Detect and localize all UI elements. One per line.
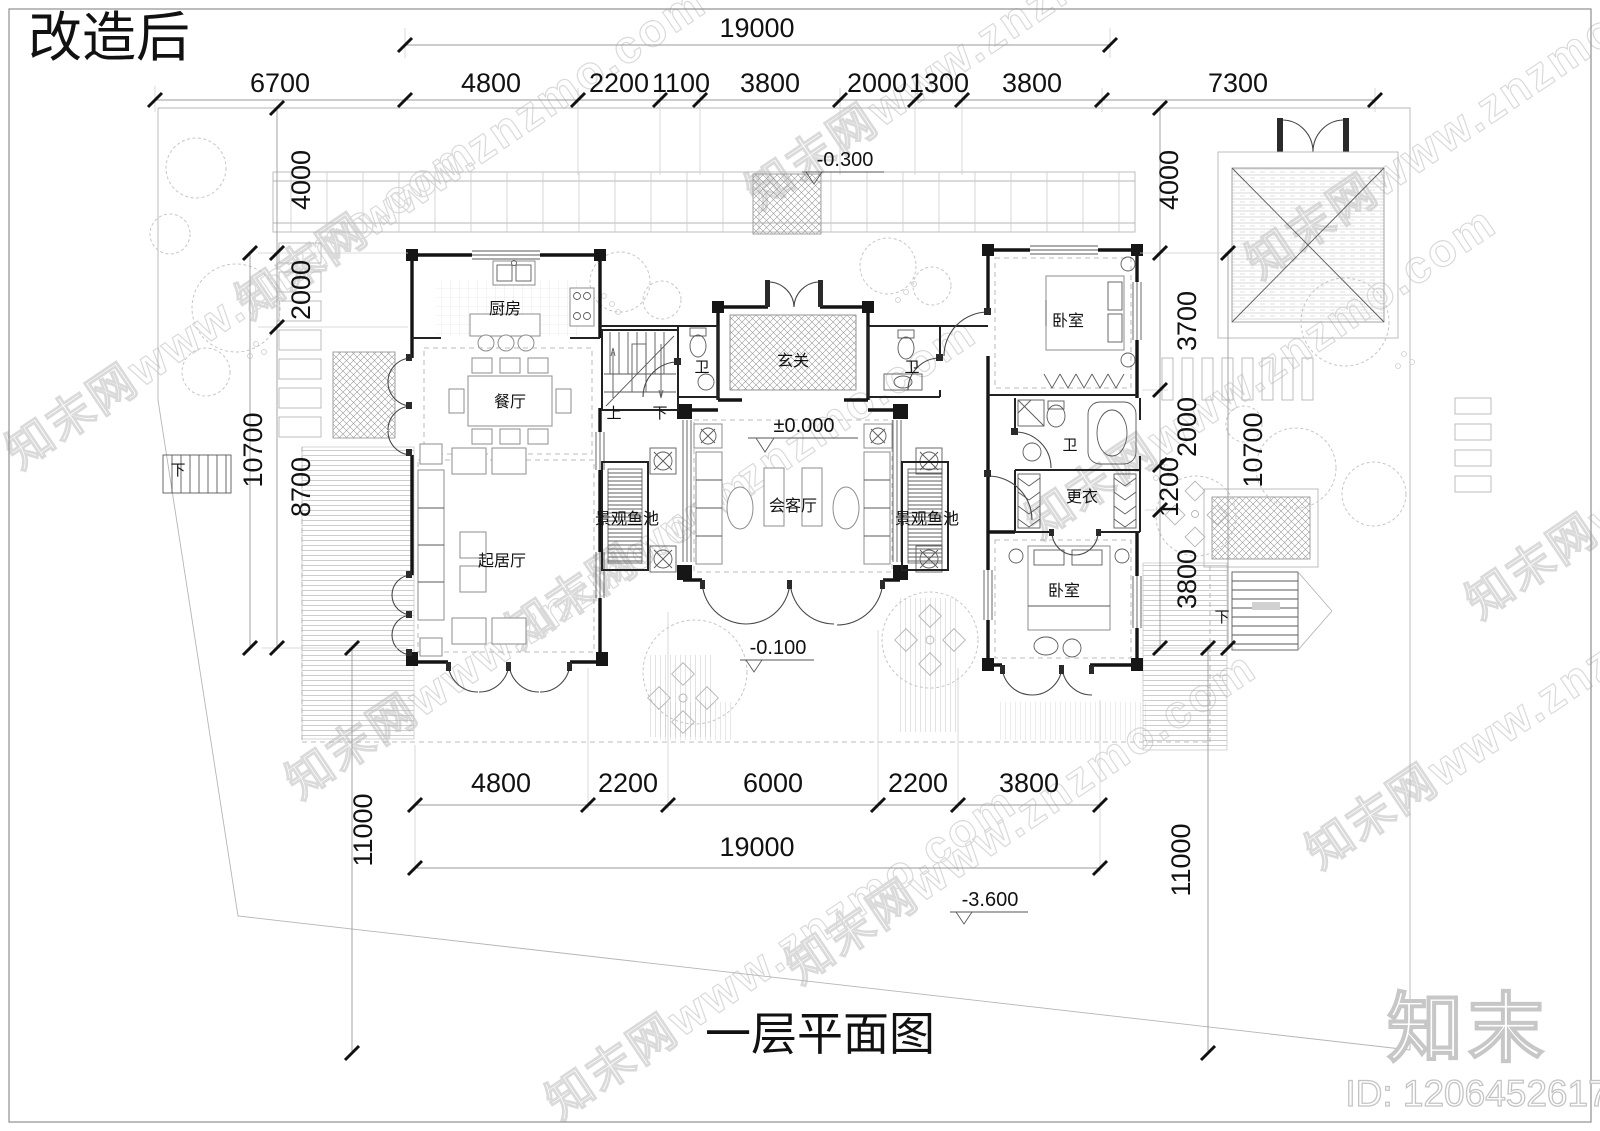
dim-top-6: 1300 — [909, 68, 969, 98]
label-stair-down-left: 下 — [170, 462, 185, 479]
dim-right-1: 3700 — [1172, 291, 1202, 351]
label-bath-right: 卫 — [1062, 437, 1077, 454]
label-bath-left: 卫 — [694, 359, 709, 376]
dim-top-3: 1100 — [652, 68, 710, 98]
level-courtyard: -0.100 — [750, 637, 807, 659]
label-dining: 餐厅 — [494, 393, 526, 411]
dim-left-2: 10700 — [238, 412, 268, 487]
right-pond-pad — [1212, 497, 1310, 559]
label-kitchen: 厨房 — [489, 300, 521, 318]
pavilion-roof — [1218, 152, 1398, 338]
dim-right-4: 10700 — [1238, 412, 1268, 487]
label-stair-down: 下 — [652, 405, 667, 422]
dim-bottom-total: 19000 — [719, 832, 794, 862]
plan-title: 一层平面图 — [705, 1008, 935, 1060]
label-bedroom-bottom: 卧室 — [1048, 582, 1080, 600]
dim-right-6: 11000 — [1166, 823, 1196, 896]
watermark-text: 知末网www.znzmo.com — [1457, 275, 1600, 628]
dim-top-2: 2200 — [589, 68, 649, 98]
dim-top-0: 6700 — [250, 68, 310, 98]
dim-left-0: 4000 — [286, 150, 316, 210]
brand-id: ID: 1206452617 — [1345, 1073, 1600, 1114]
level-entry: -0.300 — [817, 149, 874, 171]
dim-left-1: 2000 — [286, 260, 316, 320]
label-bedroom-top: 卧室 — [1052, 312, 1084, 330]
dim-bottom-1: 2200 — [598, 768, 658, 798]
kitchen-window — [472, 251, 540, 259]
label-living: 起居厅 — [478, 552, 526, 570]
dim-right-3: 1200 — [1154, 457, 1184, 517]
dim-top-8: 7300 — [1208, 68, 1268, 98]
revision-title: 改造后 — [28, 8, 190, 68]
brand-logo: 知末 — [1387, 987, 1549, 1072]
courtyard-grass-2 — [900, 598, 958, 732]
courtyard-grass-4 — [1000, 702, 1150, 740]
label-stair-down-right: 下 — [1214, 609, 1229, 626]
dim-right-2: 2000 — [1172, 397, 1202, 457]
site-gate — [1277, 118, 1349, 152]
dim-right-5: 3800 — [1172, 549, 1202, 609]
label-bath-center: 卫 — [904, 359, 919, 376]
entry-paving-pad — [753, 174, 821, 234]
drawing-sheet: 知末网www.znzmo.com 知末网www.znzmo.com 知末网www… — [0, 0, 1600, 1131]
dim-left-3: 8700 — [286, 457, 316, 517]
level-site: -3.600 — [962, 889, 1019, 911]
floor-plan-canvas: 知末网www.znzmo.com 知末网www.znzmo.com 知末网www… — [0, 0, 1600, 1131]
label-pond-right: 景观鱼池 — [895, 510, 959, 528]
dim-bottom-3: 2200 — [888, 768, 948, 798]
label-foyer: 玄关 — [777, 352, 809, 370]
dim-bottom-0: 4800 — [471, 768, 531, 798]
dim-right-0: 4000 — [1154, 150, 1184, 210]
label-stair-up: 上 — [606, 405, 621, 422]
left-deck — [302, 447, 414, 739]
label-closet: 更衣 — [1066, 488, 1098, 506]
right-exterior-stair — [1232, 572, 1332, 650]
label-reception: 会客厅 — [769, 497, 817, 515]
dim-left-4: 11000 — [348, 793, 378, 866]
dim-top-5: 2000 — [847, 68, 907, 98]
dim-top-1: 4800 — [461, 68, 521, 98]
interior-stair — [602, 330, 678, 410]
dim-top-total: 19000 — [719, 13, 794, 43]
courtyard-grass-3 — [660, 702, 734, 740]
dim-bottom-2: 6000 — [743, 768, 803, 798]
dim-bottom-4: 3800 — [999, 768, 1059, 798]
dim-top-4: 3800 — [740, 68, 800, 98]
level-main: ±0.000 — [773, 415, 834, 437]
dim-top-7: 3800 — [1002, 68, 1062, 98]
label-pond-left: 景观鱼池 — [595, 510, 659, 528]
